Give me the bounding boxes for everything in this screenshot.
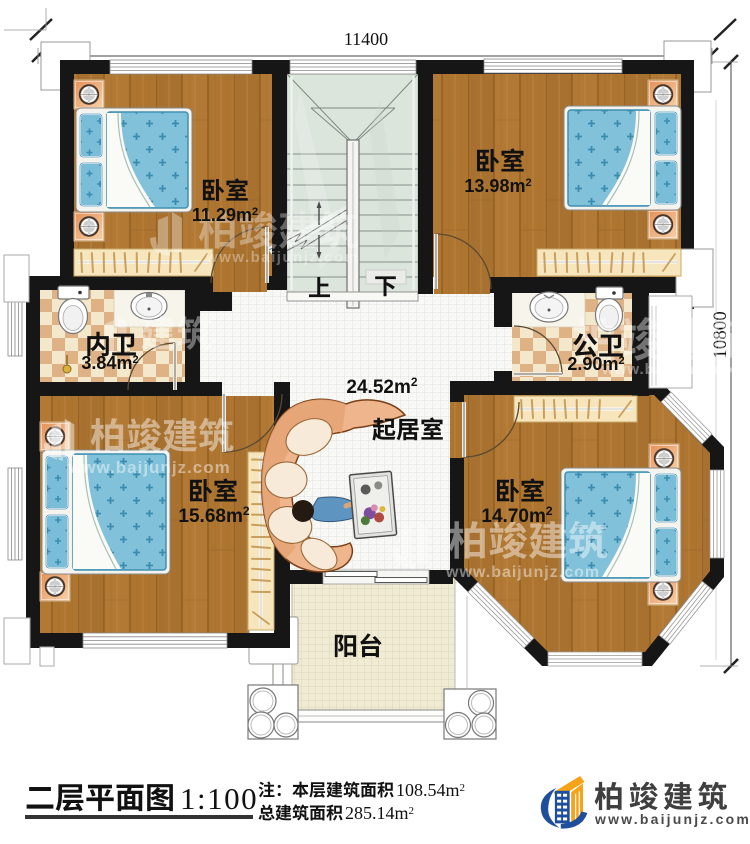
svg-text:www.baijunjz.com: www.baijunjz.com bbox=[445, 564, 600, 581]
svg-text:108.54m2: 108.54m2 bbox=[396, 780, 465, 800]
svg-text:11400: 11400 bbox=[344, 29, 388, 49]
svg-text:2.90m2: 2.90m2 bbox=[567, 354, 624, 374]
svg-text:14.70m2: 14.70m2 bbox=[481, 504, 552, 527]
svg-text:3.84m2: 3.84m2 bbox=[81, 353, 138, 373]
svg-text:11.29m2: 11.29m2 bbox=[192, 205, 258, 225]
svg-text:1:100: 1:100 bbox=[180, 781, 258, 816]
svg-text:13.98m2: 13.98m2 bbox=[464, 176, 531, 196]
svg-text:www.baijunjz.com: www.baijunjz.com bbox=[594, 811, 750, 827]
svg-text:www.baijunjz.com: www.baijunjz.com bbox=[67, 458, 231, 477]
svg-text:285.14m2: 285.14m2 bbox=[345, 803, 414, 823]
svg-text:15.68m2: 15.68m2 bbox=[178, 504, 249, 527]
svg-text:www.baijunjz.com: www.baijunjz.com bbox=[205, 249, 359, 266]
svg-text:24.52m2: 24.52m2 bbox=[346, 375, 417, 398]
